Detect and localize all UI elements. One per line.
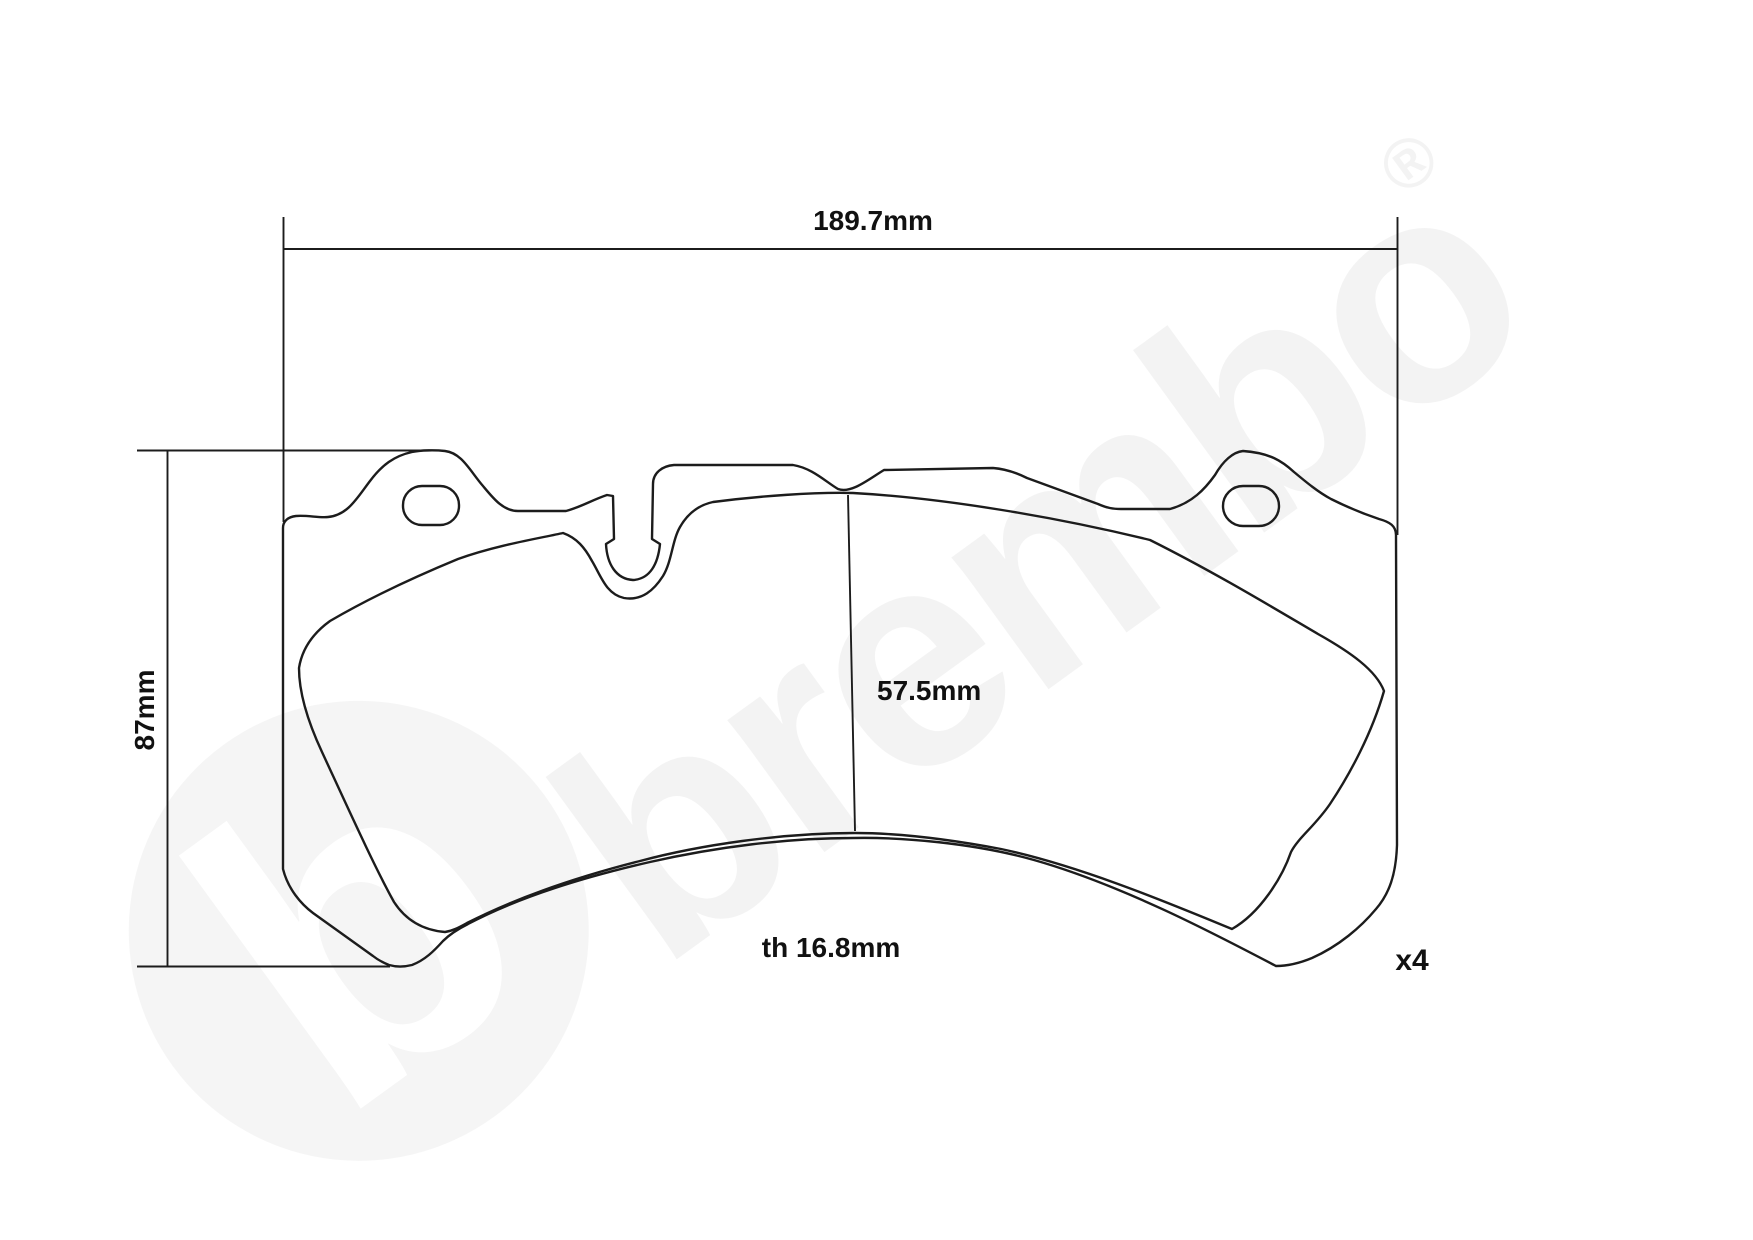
thickness-label: th 16.8mm <box>762 932 901 963</box>
width-dimension-label: 189.7mm <box>813 205 933 236</box>
pad-height-dimension-label: 57.5mm <box>877 675 981 706</box>
brembo-watermark: b brembo ® <box>30 0 1594 1240</box>
drawing-canvas: b brembo ® 189.7mm 87mm 57.5mm th 16.8mm… <box>0 0 1753 1240</box>
left-abutment-hole <box>403 486 459 525</box>
brembo-watermark-text: brembo <box>495 104 1580 1025</box>
height-dimension-label: 87mm <box>129 670 160 751</box>
quantity-label: x4 <box>1395 944 1429 977</box>
technical-drawing: b brembo ® 189.7mm 87mm 57.5mm th 16.8mm… <box>0 0 1753 1240</box>
